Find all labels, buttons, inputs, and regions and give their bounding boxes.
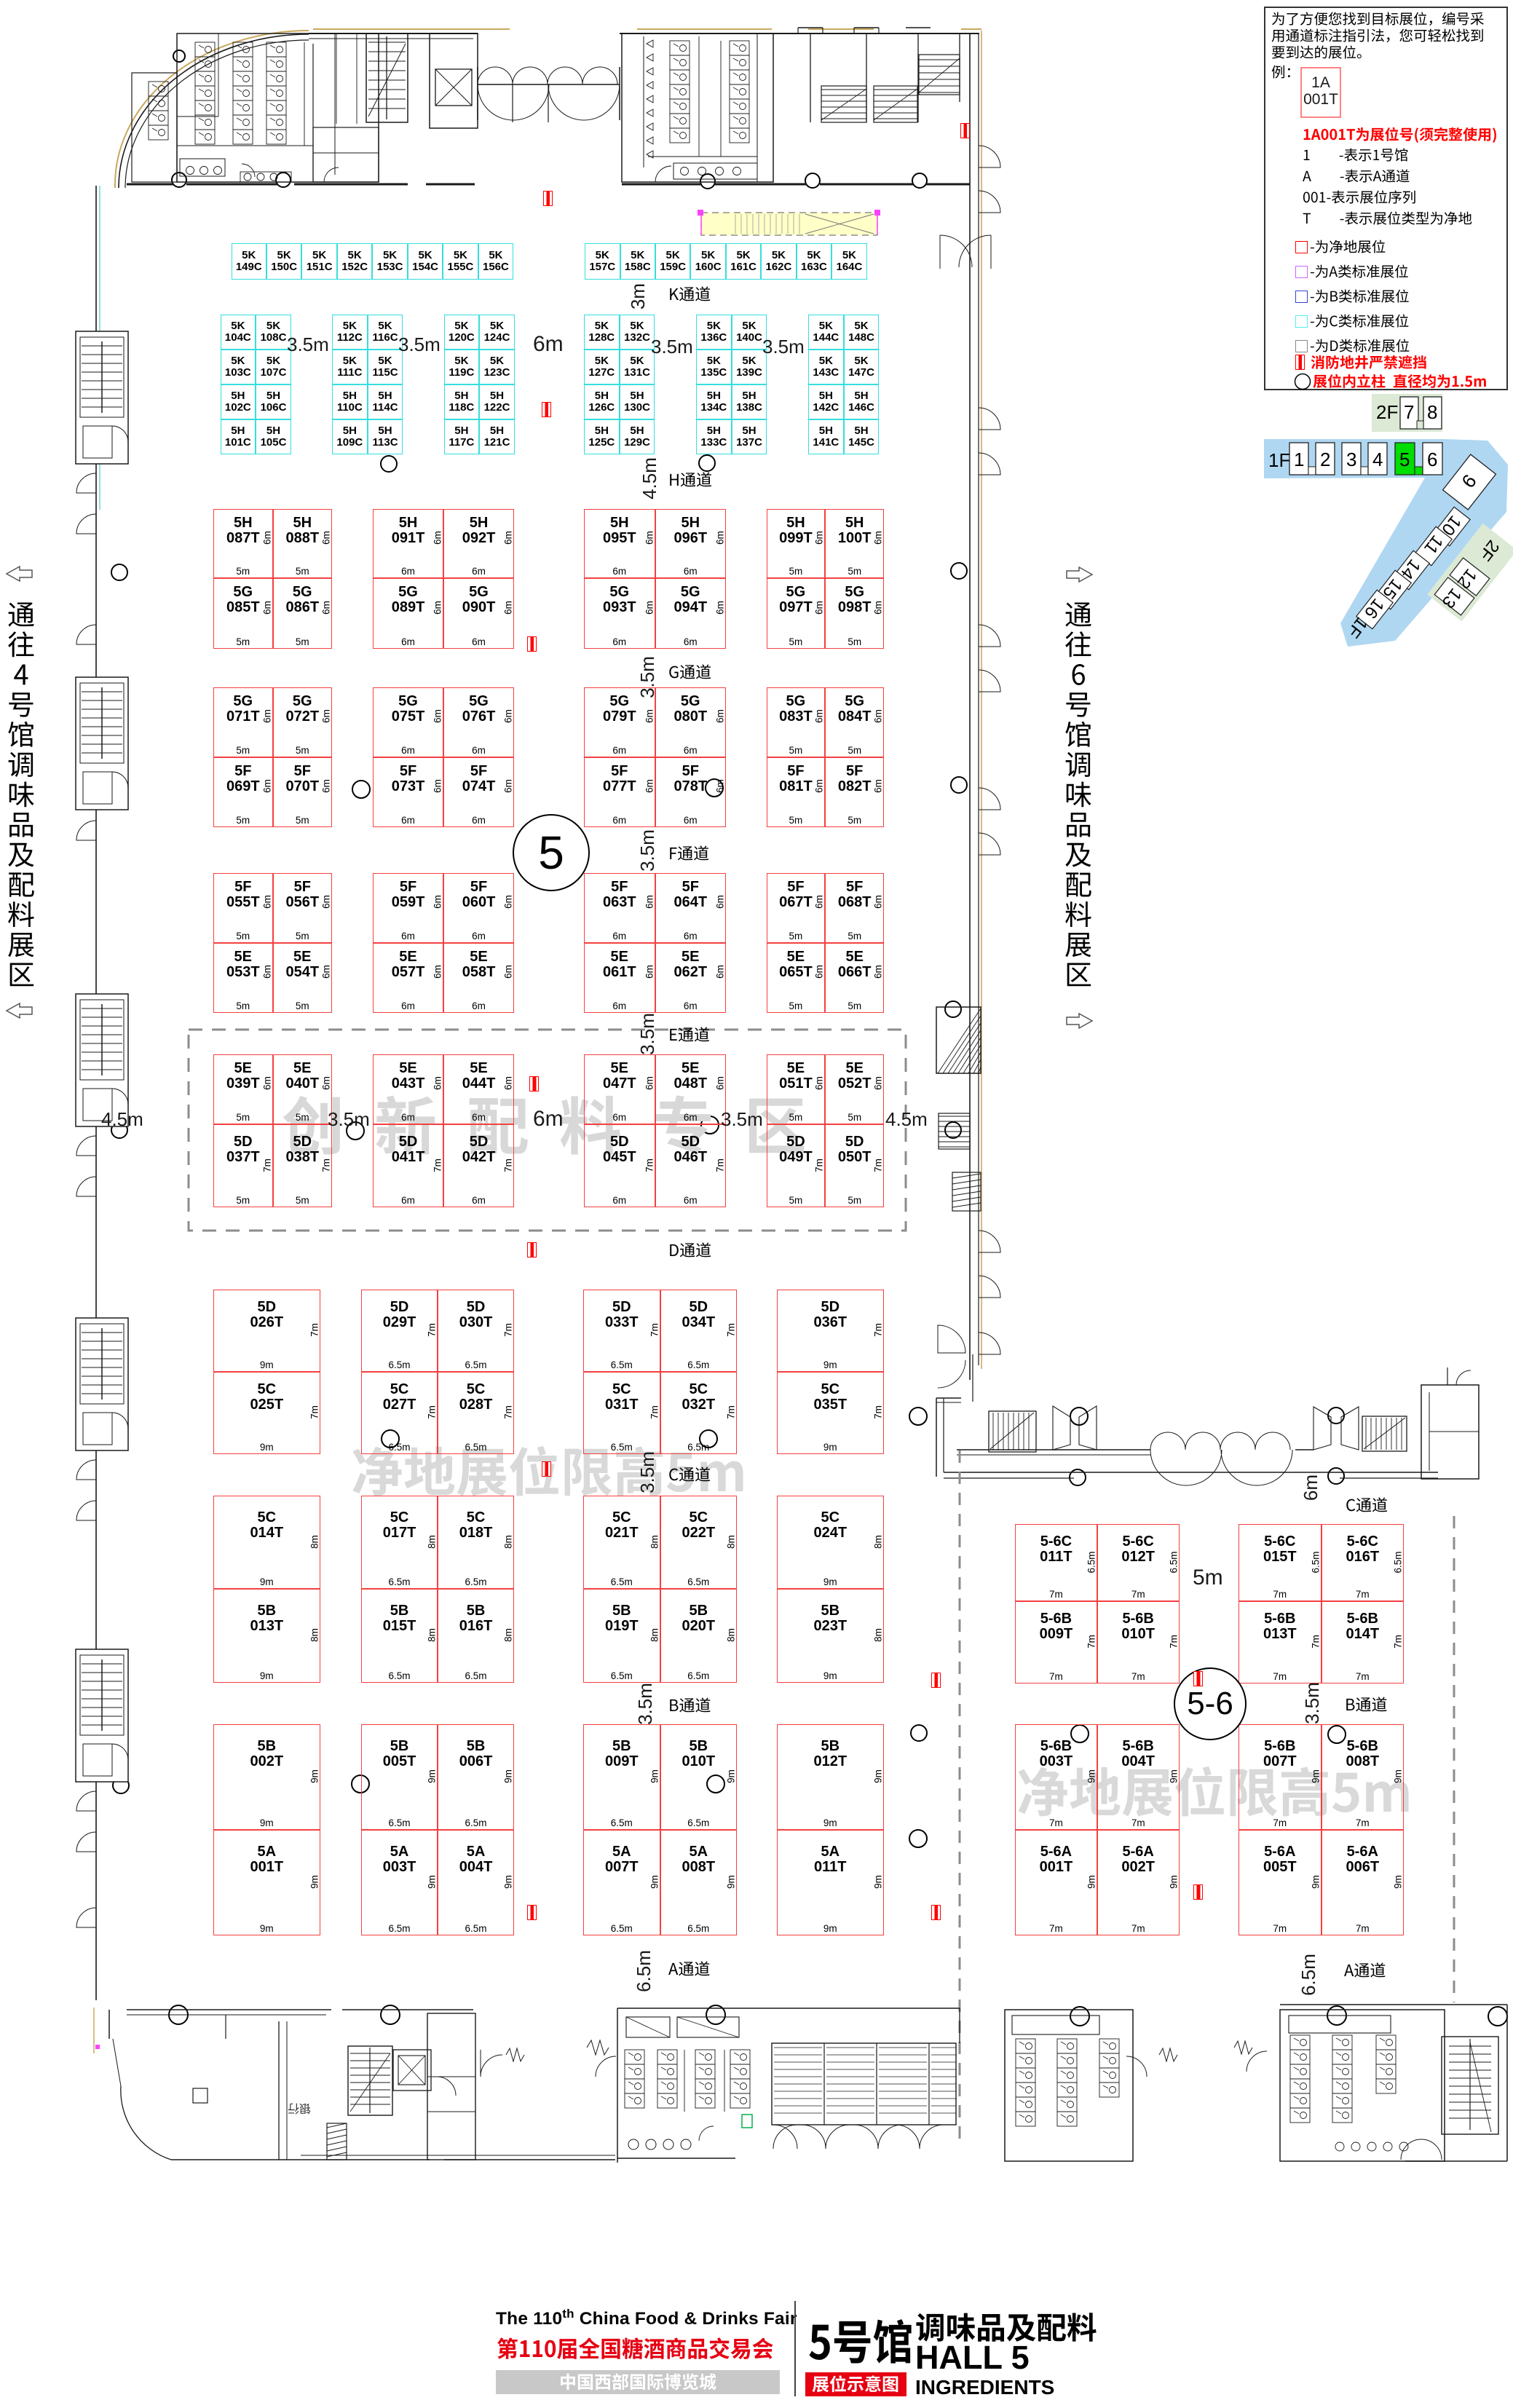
svg-text:6: 6	[1427, 449, 1437, 470]
svg-text:2F: 2F	[1376, 401, 1398, 423]
svg-text:7: 7	[1404, 401, 1414, 423]
svg-text:8: 8	[1427, 401, 1437, 423]
svg-text:2: 2	[1320, 449, 1330, 470]
svg-text:4: 4	[1372, 449, 1383, 470]
svg-text:5: 5	[1399, 449, 1410, 470]
svg-text:1: 1	[1294, 449, 1304, 470]
svg-text:3: 3	[1346, 449, 1356, 470]
svg-text:1F: 1F	[1268, 449, 1290, 471]
